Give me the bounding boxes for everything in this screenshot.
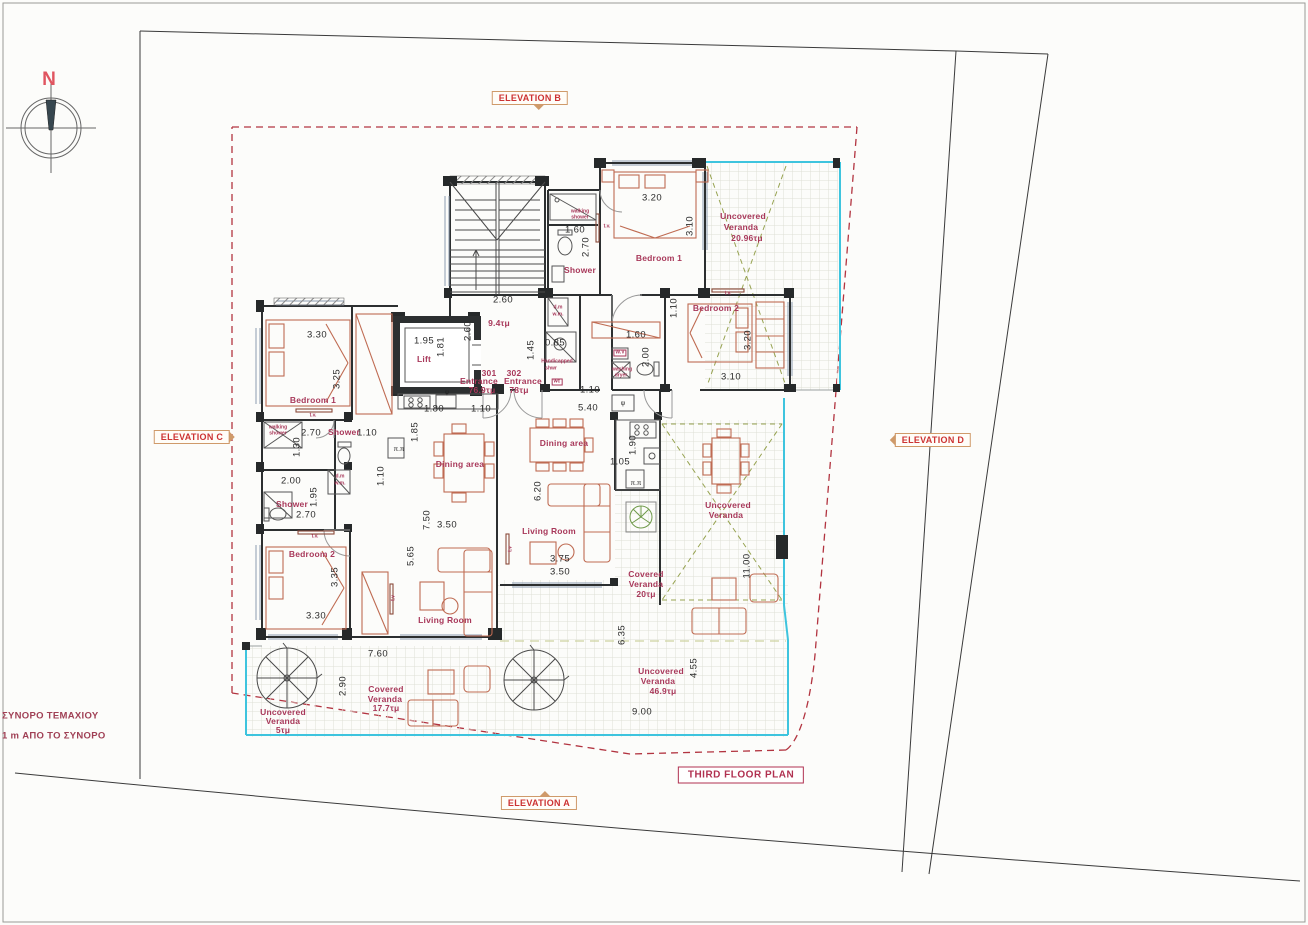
room-label: 20τμ <box>636 590 655 599</box>
dimension-label: 3.75 <box>550 554 570 564</box>
room-label: Uncovered <box>638 667 684 676</box>
fixture-label: w.m. <box>335 482 346 487</box>
dimension-label: 3.20 <box>642 193 662 203</box>
dimension-label: 3.20 <box>743 330 753 350</box>
dimension-label: 3.50 <box>550 567 570 577</box>
fixture-label: Handicapped <box>541 360 572 365</box>
fixture-label: t.v <box>392 595 397 601</box>
dimension-label: 1.81 <box>436 337 446 357</box>
room-label: 78τμ <box>509 386 528 395</box>
staircase <box>450 182 545 295</box>
room-label: Shower <box>276 500 308 509</box>
fixture-label: t.v. <box>725 292 732 297</box>
dimension-label: 2.00 <box>281 476 301 486</box>
plot-boundary-lines <box>15 31 1300 881</box>
fixture-label: t.v <box>509 546 514 552</box>
dimension-label: 0.85 <box>545 338 565 348</box>
dimension-label: 2.60 <box>493 295 513 305</box>
room-label: Uncovered <box>720 212 766 221</box>
sheet-border <box>3 3 1305 922</box>
room-label: 76.9τμ <box>469 386 496 395</box>
room-label: Uncovered <box>705 501 751 510</box>
boundary-note: ΣΥΝΟΡΟ ΤΕΜΑΧΙΟΥ <box>2 711 99 721</box>
fixture-label: dryer <box>615 374 628 379</box>
room-label: 20.96τμ <box>731 234 763 243</box>
room-label: 5τμ <box>276 726 290 735</box>
room-label: Dining area <box>540 439 589 448</box>
elevation-marker: ELEVATION B <box>492 91 568 105</box>
room-label: Veranda <box>724 223 758 232</box>
fixture-label: t.v. <box>604 225 611 230</box>
fixture-label: shower <box>571 216 589 221</box>
symbol-label: π.π <box>394 447 405 454</box>
symbol-label: ψ <box>445 390 450 397</box>
dimension-label: 4.55 <box>689 658 699 678</box>
symbol-label: ψ <box>621 401 626 408</box>
dimension-label: 1.45 <box>526 340 536 360</box>
dimension-label: 3.50 <box>437 520 457 530</box>
compass-icon <box>6 83 96 173</box>
hatched-wall-band <box>450 176 545 184</box>
dimension-label: 3.35 <box>330 567 340 587</box>
dimension-label: 7.60 <box>368 649 388 659</box>
room-label: Covered <box>628 570 663 579</box>
room-label: Living Room <box>522 527 576 536</box>
dimension-label: 1.90 <box>628 435 638 455</box>
room-label: Lift <box>417 355 431 364</box>
dimension-label: 1.60 <box>565 225 585 235</box>
dimension-label: 3.10 <box>685 216 695 236</box>
boundary-note: 1 m ΑΠΟ ΤΟ ΣΥΝΟΡΟ <box>2 731 106 741</box>
dimension-label: 1.85 <box>410 422 420 442</box>
fixture-label: W.V <box>613 350 626 357</box>
symbol-label: π.π <box>631 481 642 488</box>
dimension-label: 2.70 <box>581 237 591 257</box>
dimension-label: 11.00 <box>742 553 752 578</box>
room-label: Living Room <box>418 616 472 625</box>
dimension-label: 3.30 <box>307 330 327 340</box>
dimension-label: 9.00 <box>632 707 652 717</box>
dimension-label: 1.80 <box>424 404 444 414</box>
dimension-label: 2.70 <box>296 510 316 520</box>
hatched-wall-band <box>274 298 344 305</box>
fixture-label: t.v. <box>312 535 319 540</box>
dimension-label: 5.65 <box>406 546 416 566</box>
drawing-sheet: N THIRD FLOOR PLAN ELEVATION BELEVATION … <box>0 0 1308 925</box>
dimension-label: 1.30 <box>292 437 302 457</box>
dimension-label: 1.60 <box>626 330 646 340</box>
fixture-label: d.m <box>336 475 345 480</box>
room-label: Bedroom 1 <box>636 254 682 263</box>
fixture-label: shower <box>269 432 287 437</box>
room-label: Covered <box>368 685 403 694</box>
fixture-label: w.m. <box>553 313 564 318</box>
dimension-label: 1.10 <box>376 466 386 486</box>
elevation-marker: ELEVATION D <box>895 433 971 447</box>
dimension-label: 3.25 <box>332 369 342 389</box>
dimension-label: 6.35 <box>617 625 627 645</box>
dimension-label: 2.00 <box>641 347 651 367</box>
dimension-label: 1.95 <box>309 487 319 507</box>
dimension-label: 2.70 <box>301 428 321 438</box>
dimension-label: 3.10 <box>721 372 741 382</box>
plan-title: THIRD FLOOR PLAN <box>678 767 804 784</box>
dimension-label: 2.60 <box>463 321 473 341</box>
fixture-label: d.m <box>554 306 563 311</box>
fixture-label: shwr <box>545 367 557 372</box>
room-label: Bedroom 2 <box>289 550 335 559</box>
dimension-label: 1.10 <box>471 404 491 414</box>
compass-north-label: N <box>42 69 56 91</box>
dimension-label: 2.90 <box>338 676 348 696</box>
wardrobe-icon <box>356 314 392 414</box>
room-label: 9.4τμ <box>488 319 510 328</box>
room-label: Veranda <box>709 511 743 520</box>
elevation-marker: ELEVATION C <box>154 430 230 444</box>
room-label: 17.7τμ <box>373 704 400 713</box>
dimension-label: 1.05 <box>610 457 630 467</box>
room-label: Shower <box>328 428 360 437</box>
dimension-label: 1.10 <box>669 298 679 318</box>
room-label: Veranda <box>629 580 663 589</box>
dimension-label: 1.10 <box>580 385 600 395</box>
fixture-label: t.v. <box>310 414 317 419</box>
dimension-label: 6.20 <box>533 481 543 501</box>
room-label: Veranda <box>641 677 675 686</box>
room-label: Bedroom 2 <box>693 304 739 313</box>
fixture-label: wc <box>552 379 563 386</box>
dimension-label: 3.30 <box>306 611 326 621</box>
dimension-label: 7.50 <box>422 510 432 530</box>
dimension-label: 5.40 <box>578 403 598 413</box>
room-label: 46.9τμ <box>650 687 677 696</box>
dimension-label: 1.95 <box>414 336 434 346</box>
floor-plan-drawing <box>0 0 1308 925</box>
elevation-marker: ELEVATION A <box>501 796 577 810</box>
room-label: Dining area <box>436 460 485 469</box>
wardrobe-icon <box>362 572 388 634</box>
room-label: Shower <box>564 266 596 275</box>
room-label: Bedroom 1 <box>290 396 336 405</box>
